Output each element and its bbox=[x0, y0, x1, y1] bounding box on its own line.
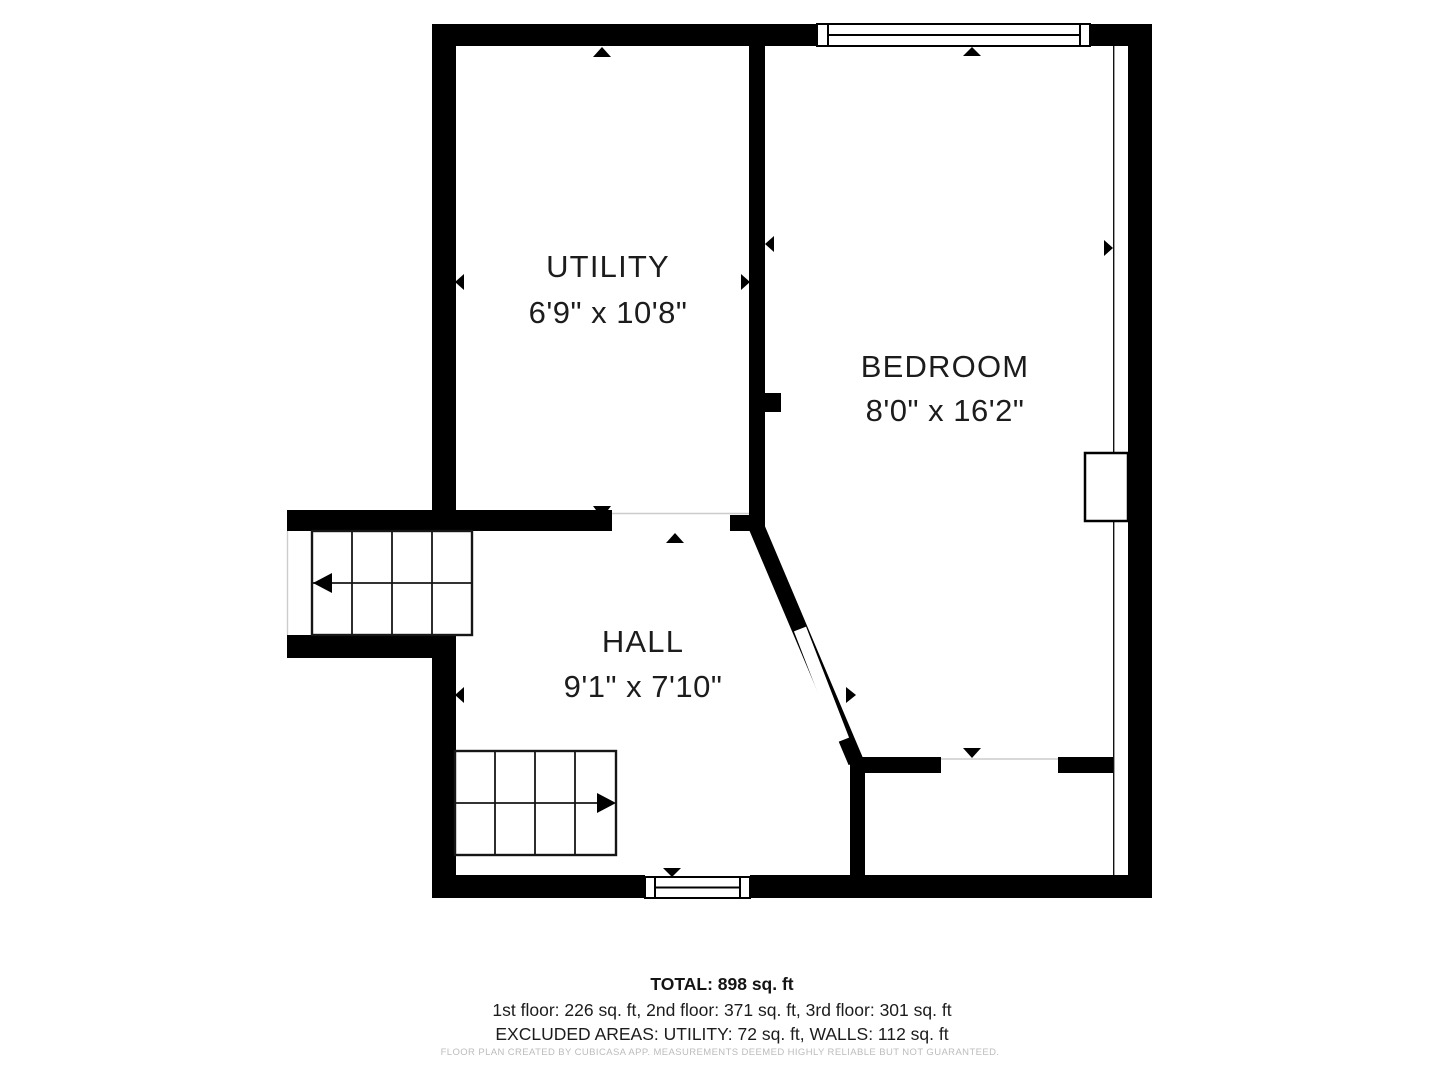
floor-plan-page: UTILITY 6'9" x 10'8" BEDROOM 8'0" x 16'2… bbox=[0, 0, 1440, 1080]
wall-divider-nub-left bbox=[730, 515, 749, 531]
marker-right-divider-utility-side bbox=[741, 274, 750, 290]
wall-stair-extension-bottom bbox=[287, 635, 456, 658]
room-labels: UTILITY 6'9" x 10'8" BEDROOM 8'0" x 16'2… bbox=[529, 249, 1030, 704]
marker-down-bottom-window bbox=[663, 868, 681, 877]
summary-excluded: EXCLUDED AREAS: UTILITY: 72 sq. ft, WALL… bbox=[495, 1024, 948, 1044]
wall-divider-utility-bedroom bbox=[749, 24, 765, 531]
marker-up-hall-opening bbox=[666, 533, 684, 543]
room-label-hall: HALL bbox=[602, 624, 684, 659]
marker-right-diagonal-door bbox=[846, 687, 856, 703]
summary-floors: 1st floor: 226 sq. ft, 2nd floor: 371 sq… bbox=[492, 1000, 951, 1020]
wall-closet-top-right bbox=[1058, 757, 1113, 773]
wall-closet-left bbox=[850, 757, 865, 877]
marker-down-closet-opening bbox=[963, 748, 981, 758]
window-bottom bbox=[645, 877, 750, 898]
staircase-upper bbox=[312, 531, 472, 635]
wall-divider-nub-right bbox=[765, 393, 781, 412]
right-wall-fixture bbox=[1085, 453, 1128, 521]
marker-left-utility-left-wall bbox=[455, 274, 464, 290]
marker-left-divider-bedroom-side bbox=[765, 236, 774, 252]
wall-bottom-left-segment bbox=[432, 875, 645, 898]
floor-plan-svg: UTILITY 6'9" x 10'8" BEDROOM 8'0" x 16'2… bbox=[0, 0, 1440, 1080]
footer-disclaimer: FLOOR PLAN CREATED BY CUBICASA APP. MEAS… bbox=[441, 1047, 1000, 1058]
room-dims-utility: 6'9" x 10'8" bbox=[529, 295, 688, 330]
room-dims-hall: 9'1" x 7'10" bbox=[564, 669, 723, 704]
wall-hall-top bbox=[287, 510, 612, 531]
room-dims-bedroom: 8'0" x 16'2" bbox=[866, 393, 1025, 428]
wall-left-upper bbox=[432, 24, 456, 531]
wall-left-lower bbox=[432, 635, 456, 898]
marker-up-bedroom-top bbox=[963, 47, 981, 56]
marker-right-bedroom-right-wall bbox=[1104, 240, 1113, 256]
area-summary: TOTAL: 898 sq. ft 1st floor: 226 sq. ft,… bbox=[441, 974, 1000, 1058]
summary-total: TOTAL: 898 sq. ft bbox=[650, 974, 793, 994]
room-label-bedroom: BEDROOM bbox=[861, 349, 1030, 384]
wall-bottom-right-segment bbox=[750, 875, 1152, 898]
marker-left-hall-left-wall bbox=[455, 687, 464, 703]
wall-right bbox=[1128, 24, 1152, 898]
window-top bbox=[817, 24, 1090, 46]
staircase-lower bbox=[455, 751, 616, 855]
wall-closet-top-left bbox=[862, 757, 941, 773]
room-label-utility: UTILITY bbox=[546, 249, 670, 284]
door-opening-diagonal bbox=[800, 629, 843, 740]
walls bbox=[287, 24, 1152, 898]
marker-up-utility-top bbox=[593, 47, 611, 57]
